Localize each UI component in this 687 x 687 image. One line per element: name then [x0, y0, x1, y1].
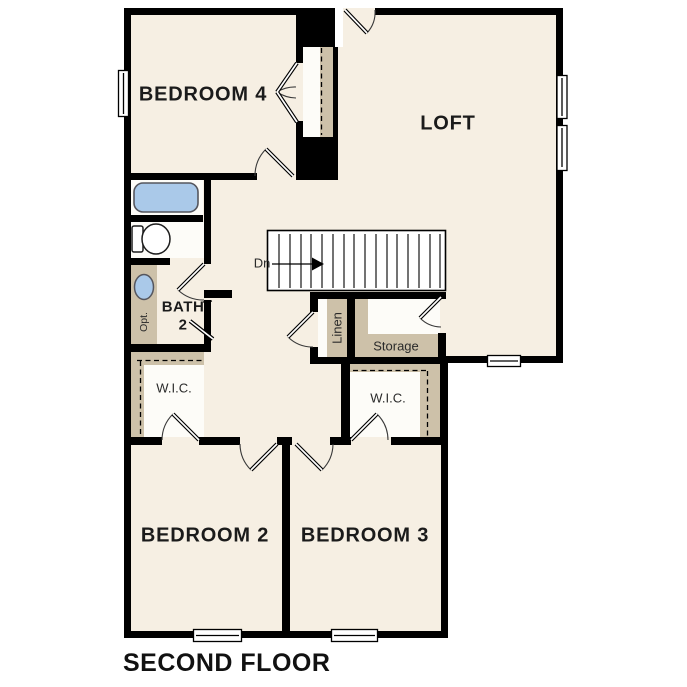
- bedroom4-window: [119, 71, 129, 117]
- bath-label-leader: [203, 301, 212, 302]
- wic-left-door-arc: [162, 414, 173, 440]
- label-linen: Linen: [330, 312, 345, 344]
- label-vanity-opt: Opt.: [138, 312, 150, 332]
- loft-window-lower: [557, 126, 567, 171]
- room-label-bath-line1: BATH: [162, 299, 205, 316]
- staircase: [268, 231, 446, 291]
- loft-window-upper: [557, 76, 567, 119]
- bedroom2-window: [194, 630, 242, 642]
- windows: [119, 71, 568, 642]
- room-label-bedroom3: BEDROOM 3: [301, 525, 429, 548]
- vanity-sink: [135, 275, 154, 300]
- label-storage: Storage: [373, 339, 419, 354]
- loft-bottom-window: [488, 356, 521, 367]
- label-wic-left: W.I.C.: [156, 381, 191, 396]
- loft-top-door-arc: [367, 10, 375, 33]
- linen-door-arc: [288, 337, 313, 347]
- bedroom4-door-arc: [255, 149, 266, 176]
- room-label-loft: LOFT: [420, 113, 475, 136]
- room-label-bedroom4: BEDROOM 4: [139, 84, 267, 107]
- label-stairs-dn: Dn: [254, 256, 271, 271]
- bedroom3-window: [332, 630, 378, 642]
- bathtub: [134, 183, 198, 212]
- room-label-bath-line2: 2: [179, 317, 188, 334]
- bedroom2-door-arc: [240, 444, 251, 470]
- room-label-bedroom2: BEDROOM 2: [141, 525, 269, 548]
- toilet: [132, 224, 170, 254]
- floor-plan: BEDROOM 4 LOFT BEDROOM 2 BEDROOM 3 BATH …: [0, 0, 687, 687]
- wic-left-rod-dashed: [137, 361, 203, 437]
- label-wic-right: W.I.C.: [370, 391, 405, 406]
- bedroom3-door-arc: [322, 444, 333, 470]
- wic-right-door-arc: [377, 414, 388, 440]
- plan-caption: SECOND FLOOR: [123, 649, 330, 678]
- storage-door-arc: [420, 318, 441, 327]
